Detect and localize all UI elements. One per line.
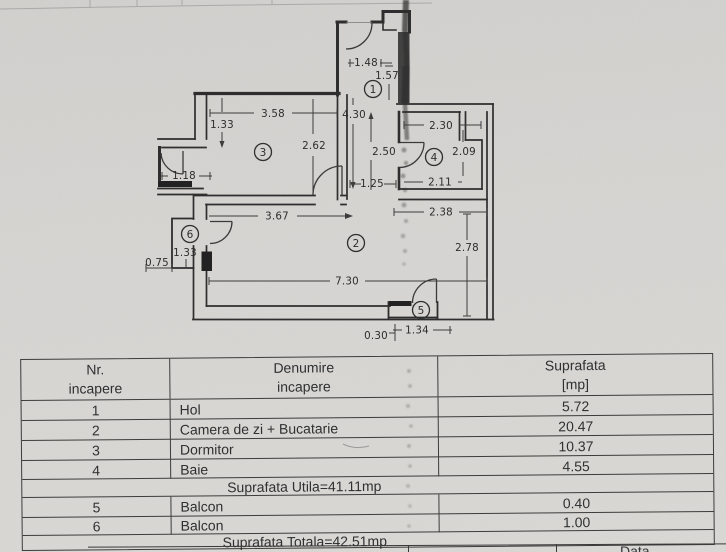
dim-3-67: 3.67 bbox=[265, 211, 289, 223]
header-den-line2: incapere bbox=[277, 377, 331, 396]
svg-text:3: 3 bbox=[260, 147, 267, 159]
data-label: Data bbox=[620, 543, 650, 552]
header-den-line1: Denumire bbox=[273, 358, 334, 378]
scanned-floorplan-document: 1.48 1.57 4.30 2.50 1.25 3.58 1.33 2.62 … bbox=[0, 0, 726, 552]
dim-2-62: 2.62 bbox=[302, 140, 326, 152]
header-nr-line1: Nr. bbox=[86, 360, 104, 379]
dim-1-34: 1.34 bbox=[405, 325, 429, 337]
cell-nr: 2 bbox=[22, 420, 170, 441]
dim-1-33-balcony6: 1.33 bbox=[173, 247, 197, 259]
next-section-divider bbox=[556, 544, 557, 552]
dim-1-18: 1.18 bbox=[172, 170, 196, 182]
dim-2-09: 2.09 bbox=[452, 146, 476, 158]
header-denumire-incapere: Denumire incapere bbox=[169, 356, 437, 398]
dim-2-30: 2.30 bbox=[429, 120, 453, 132]
dim-2-11: 2.11 bbox=[428, 177, 452, 189]
cell-nr: 5 bbox=[22, 497, 170, 518]
dim-7-30: 7.30 bbox=[335, 276, 359, 288]
dim-1-48: 1.48 bbox=[354, 57, 378, 69]
dim-3-58: 3.58 bbox=[261, 108, 285, 120]
areas-table: Nr. incapere Denumire incapere Suprafata… bbox=[20, 353, 715, 551]
table-header-row: Nr. incapere Denumire incapere Suprafata… bbox=[21, 354, 712, 400]
header-nr-line2: incapere bbox=[68, 379, 122, 398]
header-sup-line2: [mp] bbox=[562, 375, 589, 394]
dim-4-30: 4.30 bbox=[342, 109, 366, 121]
header-suprafata: Suprafata [mp] bbox=[437, 354, 712, 396]
dim-0-30: 0.30 bbox=[364, 330, 388, 342]
svg-text:4: 4 bbox=[431, 152, 438, 164]
svg-text:5: 5 bbox=[418, 305, 425, 317]
svg-text:6: 6 bbox=[187, 229, 194, 241]
dim-2-38: 2.38 bbox=[429, 207, 453, 219]
dim-2-50: 2.50 bbox=[372, 146, 396, 158]
header-sup-line1: Suprafata bbox=[545, 356, 606, 376]
dim-1-57: 1.57 bbox=[375, 70, 399, 82]
suprafata-totala-label: Suprafata Totala=42.51mp bbox=[171, 532, 439, 549]
dim-1-33-room3: 1.33 bbox=[210, 119, 234, 131]
dim-2-78: 2.78 bbox=[455, 242, 479, 254]
dim-1-25: 1.25 bbox=[360, 178, 384, 190]
cell-nr: 3 bbox=[22, 440, 170, 461]
svg-text:2: 2 bbox=[353, 238, 360, 250]
svg-text:1: 1 bbox=[370, 84, 377, 96]
cell-nr: 1 bbox=[22, 400, 170, 421]
next-section-divider bbox=[408, 545, 409, 552]
header-nr-incapere: Nr. incapere bbox=[21, 359, 169, 400]
dim-0-75: 0.75 bbox=[145, 257, 169, 269]
